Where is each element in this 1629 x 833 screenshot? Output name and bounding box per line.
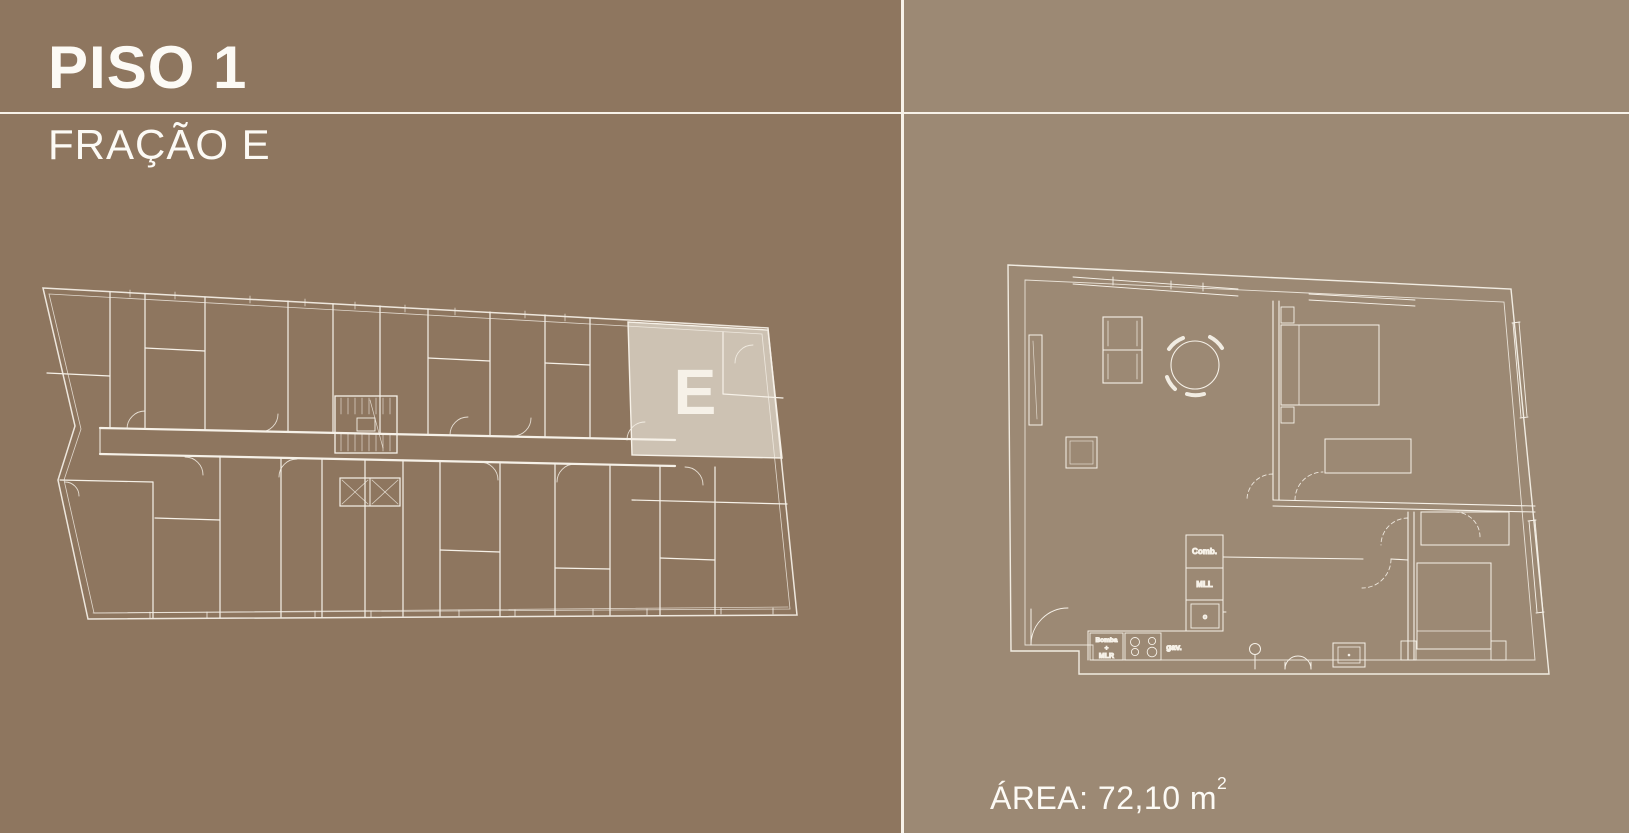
page: PISO 1 FRAÇÃO E bbox=[0, 0, 1629, 833]
overview-floor-plan: E bbox=[35, 268, 805, 628]
detail-floor-plan: Comb. MLL o Bomba + MLR gav. bbox=[953, 253, 1563, 688]
dining-table bbox=[1167, 337, 1222, 395]
elevator-shaft bbox=[340, 478, 400, 506]
header-divider-line bbox=[0, 112, 1629, 114]
area-label: ÁREA: 72,10 m2 bbox=[990, 782, 1227, 814]
door-swings bbox=[1247, 472, 1480, 588]
panel-divider-line bbox=[901, 0, 904, 833]
label-comb: Comb. bbox=[1192, 547, 1217, 556]
label-mll: MLL bbox=[1196, 580, 1213, 589]
bedroom-2 bbox=[1401, 512, 1509, 660]
page-subtitle: FRAÇÃO E bbox=[48, 124, 271, 166]
label-bomba-1: Bomba bbox=[1095, 637, 1117, 644]
area-superscript: 2 bbox=[1217, 773, 1227, 793]
left-panel: PISO 1 FRAÇÃO E bbox=[0, 0, 903, 833]
living-room-furniture bbox=[1029, 317, 1142, 468]
label-gav: gav. bbox=[1166, 643, 1181, 652]
kitchen: Comb. MLL o Bomba + MLR gav. bbox=[1088, 535, 1226, 660]
area-text: ÁREA: 72,10 m bbox=[990, 780, 1217, 816]
label-bomba-3: MLR bbox=[1099, 653, 1114, 660]
bedroom-1 bbox=[1281, 307, 1411, 473]
entry-door bbox=[1031, 608, 1068, 645]
bathroom bbox=[1250, 643, 1366, 669]
corridor bbox=[100, 428, 675, 466]
label-oven: o bbox=[1203, 614, 1207, 621]
interior-walls bbox=[1186, 301, 1535, 660]
staircase bbox=[335, 396, 397, 453]
label-bomba-2: + bbox=[1105, 645, 1109, 652]
unit-e-letter: E bbox=[674, 356, 717, 428]
page-title: PISO 1 bbox=[48, 38, 247, 98]
